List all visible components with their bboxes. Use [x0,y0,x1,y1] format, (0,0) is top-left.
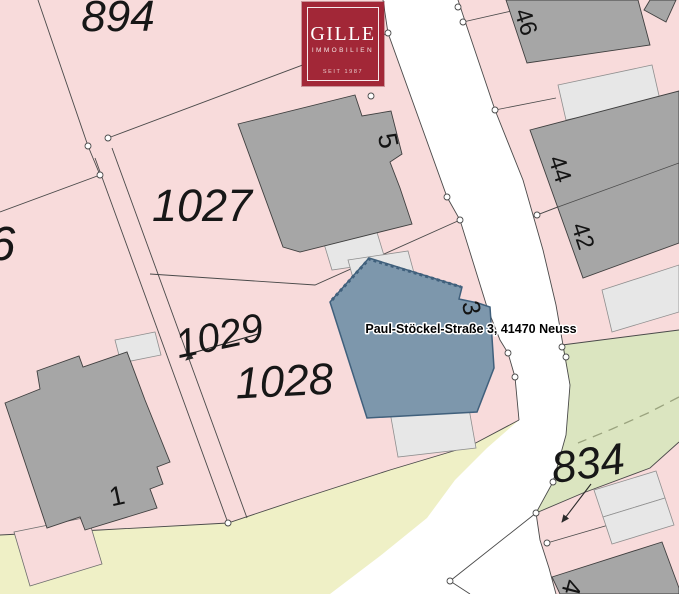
parcel-label-1028: 1028 [234,354,335,408]
gille-logo-frame: GILLE IMMOBILIEN SEIT 1987 [307,7,379,81]
parcel-label-6: 6 [0,218,16,271]
parcel-label-1027: 1027 [152,180,254,231]
parcel-map-svg: 894 1027 6 1029 1028 834 5 3 1 46 44 42 … [0,0,679,594]
cadastral-map-canvas: 894 1027 6 1029 1028 834 5 3 1 46 44 42 … [0,0,679,594]
address-label: Paul-Stöckel-Straße 3, 41470 Neuss [365,322,576,336]
parcel-label-894: 894 [81,0,154,41]
logo-subtitle-text: IMMOBILIEN [312,48,374,55]
logo-tagline-text: SEIT 1987 [323,70,363,76]
logo-brand-text: GILLE [310,24,375,44]
gille-logo: GILLE IMMOBILIEN SEIT 1987 [302,2,384,86]
parcel-label-834: 834 [548,434,628,493]
